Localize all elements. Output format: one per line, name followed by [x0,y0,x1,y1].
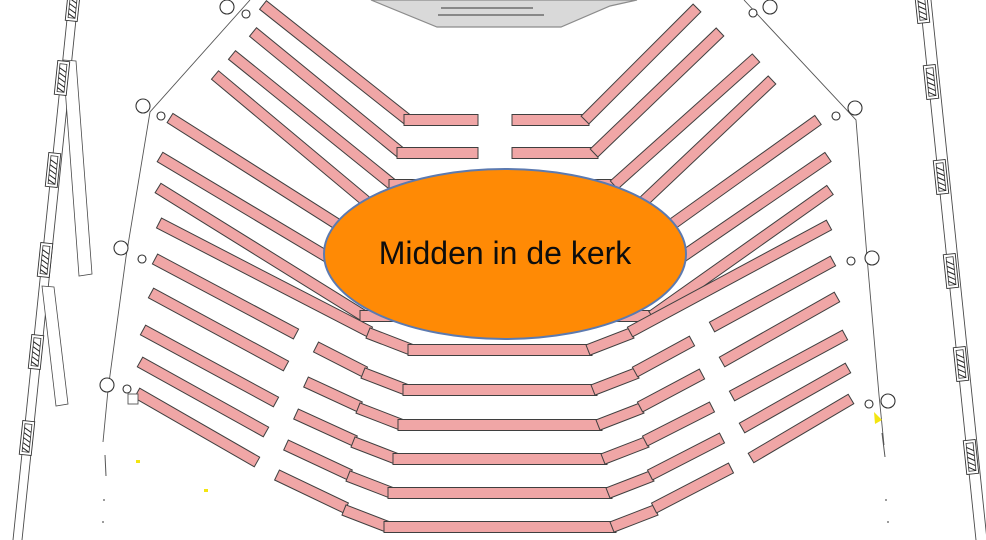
pew-bench [398,420,602,431]
podium-platform [371,0,637,27]
pew-bench [356,403,404,430]
wall-pillar-hatch [923,64,938,99]
pew-bench [361,368,409,395]
wall-pillar-hatch [28,334,43,369]
pillar-circle [138,255,146,263]
pew-bench [275,470,349,513]
pew-bench [643,402,715,446]
pillar-circle [157,112,165,120]
pillar-circle [100,378,114,392]
pew-bench [397,148,478,159]
pew-bench [388,488,612,499]
boundary-dot [887,521,889,523]
pillar-circle [847,257,855,265]
pillar-circle [114,241,128,255]
pew-bench [748,394,854,462]
pillar-circle [123,385,131,393]
small-marker-rect [128,394,138,404]
pew-bench [610,505,658,532]
yellow-dot [136,460,140,463]
pillar-circle [136,99,150,113]
pew-bench [739,363,850,433]
church-floorplan: Midden in de kerk [0,0,986,540]
pillar-circle [848,101,862,115]
pillar-circle [865,251,879,265]
boundary-dash [105,455,106,476]
pew-bench [512,115,589,126]
pillar-circle [832,112,840,120]
podium [371,0,637,27]
pew-bench [294,409,358,446]
wall-pillar-hatch [65,0,80,22]
pillar-circle [220,0,234,14]
pew-bench [351,437,399,464]
pew-bench [591,368,639,395]
pew-bench [601,437,649,464]
yellow-dot [204,489,208,492]
pew-bench [366,328,414,355]
wall-pillar-hatch [943,253,958,288]
pillar-circle [749,9,757,17]
boundary-dot [885,499,887,501]
wall-line [931,0,986,540]
center-ellipse-label: Midden in de kerk [379,235,632,272]
pew-bench [632,336,694,377]
pew-bench [304,377,363,412]
pew-bench [148,288,288,371]
pew-bench [408,345,592,356]
pew-bench [606,471,654,498]
pew-bench [637,369,704,412]
wall-pillar-hatch [953,346,968,381]
pew-bench [384,522,616,533]
boundary-dot [102,521,104,523]
pew-bench [729,330,847,401]
wall-pillar-hatch [933,159,948,194]
wall-pillar-hatch [37,242,52,277]
wall-pillar-hatch [914,0,929,24]
wall-panel [63,60,92,276]
boundary-dot [103,499,105,501]
pew-bench [393,454,607,465]
pew-bench [719,292,839,367]
pillar-circle [242,10,250,18]
pew-bench [596,403,644,430]
wall-pillar-hatch [963,439,978,474]
pillar-circle [763,0,777,14]
wall-panel [42,286,68,406]
pew-bench [586,328,634,355]
wall-pillar-hatch [19,420,34,455]
pillar-circle [881,394,895,408]
pew-bench [403,385,597,396]
pew-bench [404,115,478,126]
wall-pillar-hatch [45,152,60,187]
pillar-circle [865,400,873,408]
pew-bench [512,148,598,159]
pew-bench [284,440,353,480]
pew-bench [314,342,368,377]
pew-bench [346,471,394,498]
pew-bench [342,505,390,532]
